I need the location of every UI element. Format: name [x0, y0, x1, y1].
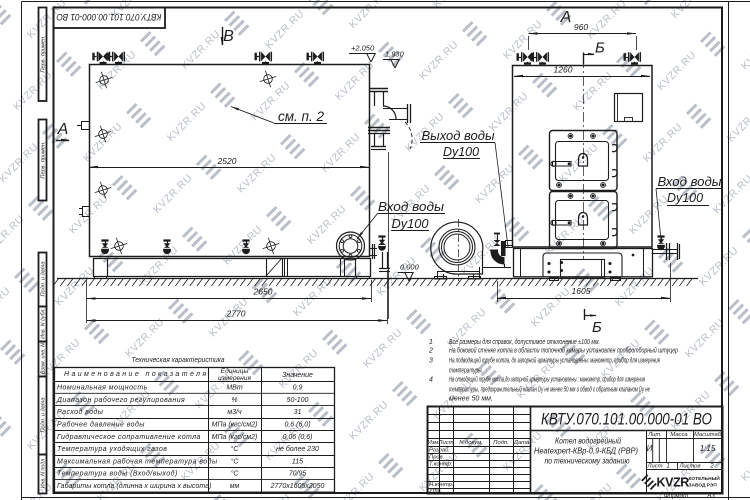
svg-text:Вход воды: Вход воды	[378, 200, 444, 214]
svg-text:Б: Б	[595, 40, 605, 57]
svg-text:Гидравлическое сопративление к: Гидравлическое сопративление котла	[57, 433, 201, 441]
svg-text:Инв. N подл: Инв. N подл	[41, 459, 47, 489]
svg-text:Листов: Листов	[678, 464, 700, 470]
svg-text:Масса: Масса	[670, 432, 688, 438]
svg-text:0,06 (0,6): 0,06 (0,6)	[283, 434, 313, 441]
svg-text:Котел водогрейный: Котел водогрейный	[555, 437, 621, 446]
svg-text:2770х1605х2050: 2770х1605х2050	[270, 483, 325, 490]
svg-text:0,6 (6,0): 0,6 (6,0)	[284, 422, 310, 429]
svg-text:не более 230: не более 230	[276, 445, 319, 453]
svg-text:Температура воды (Вход/выход): Температура воды (Вход/выход)	[57, 470, 178, 478]
svg-text:Т.контр.: Т.контр.	[429, 462, 452, 468]
svg-text:70/95: 70/95	[289, 471, 307, 478]
svg-text:КВТУ.070.101.00.000-01 ВО: КВТУ.070.101.00.000-01 ВО	[56, 11, 162, 22]
svg-text:И: И	[647, 444, 653, 453]
svg-text:А: А	[560, 9, 572, 26]
svg-text:Перв. примен.: Перв. примен.	[41, 35, 47, 72]
svg-text:Наименование показателя: Наименование показателя	[64, 371, 209, 378]
svg-text:50-100: 50-100	[287, 397, 309, 404]
svg-text:МПа (кгс/см2): МПа (кгс/см2)	[212, 434, 258, 441]
svg-text:Heatexpert-КВр-0,9-КБД (РВР): Heatexpert-КВр-0,9-КБД (РВР)	[534, 447, 638, 456]
svg-text:Лист: Лист	[647, 464, 663, 470]
svg-text:На отводящей трубе котла,до за: На отводящей трубе котла,до запорной арм…	[449, 376, 645, 384]
svg-text:температуры.: температуры.	[449, 368, 483, 375]
svg-text:Значение: Значение	[282, 372, 313, 379]
svg-text:°С: °С	[231, 445, 240, 453]
svg-text:Пров.: Пров.	[429, 455, 444, 461]
svg-text:0.000: 0.000	[400, 263, 420, 272]
svg-text:Утв.: Утв.	[428, 488, 442, 494]
svg-text:Перв. примен.: Перв. примен.	[41, 141, 47, 178]
svg-text:1605: 1605	[572, 286, 591, 296]
svg-text:Вход воды: Вход воды	[658, 175, 722, 189]
svg-text:1260: 1260	[554, 65, 573, 75]
svg-text:Расход воды: Расход воды	[57, 408, 104, 416]
svg-text:KVZR: KVZR	[657, 476, 690, 490]
svg-text:960: 960	[574, 22, 588, 32]
svg-text:А: А	[57, 121, 69, 138]
svg-text:Температура уходящих газов: Температура уходящих газов	[57, 445, 167, 453]
svg-text:А3: А3	[706, 493, 715, 500]
svg-text:3: 3	[429, 358, 433, 365]
svg-text:Габариты котла (длинна х ширин: Габариты котла (длинна х ширина х высота…	[57, 482, 212, 490]
svg-text:Взам. инв. N: Взам. инв. N	[41, 343, 47, 374]
svg-text:температуры, предохранительный: температуры, предохранительный клапан Dу…	[449, 386, 650, 394]
svg-text:2520: 2520	[217, 156, 237, 166]
svg-text:Дата: Дата	[513, 440, 530, 446]
svg-text:1,930: 1,930	[385, 50, 405, 59]
svg-text:0,9: 0,9	[293, 385, 303, 392]
svg-text:°С: °С	[231, 470, 240, 478]
svg-text:Выход воды: Выход воды	[422, 129, 495, 143]
svg-text:Dy100: Dy100	[443, 145, 479, 159]
svg-text:На боковой стенке котла в обла: На боковой стенке котла в области топочн…	[449, 347, 678, 355]
svg-text:2: 2	[428, 348, 433, 355]
svg-text:На подводящей трубе котла, д: На подводящей трубе котла, до запорной а…	[449, 357, 660, 365]
svg-text:В: В	[223, 28, 234, 45]
svg-text:115: 115	[292, 458, 303, 465]
svg-text:Лит.: Лит.	[647, 432, 662, 438]
svg-text:Лист: Лист	[438, 440, 454, 446]
svg-text:°С: °С	[231, 457, 240, 465]
svg-text:Масштаб: Масштаб	[694, 432, 722, 438]
svg-text:31: 31	[294, 409, 302, 416]
svg-text:2650: 2650	[253, 287, 273, 297]
svg-text:ЗАВОД РЭП: ЗАВОД РЭП	[689, 483, 718, 489]
svg-text:Формат: Формат	[664, 493, 689, 500]
svg-text:по техническому заданию: по техническому заданию	[545, 457, 630, 466]
svg-text:МВт: МВт	[226, 385, 243, 392]
svg-text:см. п. 2: см. п. 2	[278, 109, 324, 124]
svg-text:Все размеры для справок, допус: Все размеры для справок, допустимое откл…	[449, 338, 600, 346]
svg-text:Изм: Изм	[428, 440, 439, 446]
svg-text:Подп.: Подп.	[493, 440, 508, 446]
svg-text:менее 50 мм.: менее 50 мм.	[449, 396, 493, 403]
svg-text:Б: Б	[592, 319, 602, 336]
svg-text:Подп. и дата: Подп. и дата	[41, 261, 47, 296]
svg-text:Максимальная рабочая температу: Максимальная рабочая температура воды	[57, 457, 218, 465]
svg-text:Dy100: Dy100	[392, 217, 429, 231]
svg-text:Рабочее давление воды: Рабочее давление воды	[57, 421, 145, 429]
svg-text:Подп. и дата: Подп. и дата	[41, 397, 47, 432]
svg-text:1: 1	[429, 339, 433, 346]
svg-text:Техническая характеристика: Техническая характеристика	[132, 355, 225, 364]
svg-text:4: 4	[429, 377, 433, 384]
svg-text:1: 1	[666, 464, 669, 470]
svg-text:МПа (кгс/см2): МПа (кгс/см2)	[212, 422, 258, 429]
svg-text:%: %	[231, 397, 237, 404]
svg-text:измерения: измерения	[218, 375, 251, 382]
svg-text:КВТУ.070.101.00.000-01 ВО: КВТУ.070.101.00.000-01 ВО	[541, 410, 712, 429]
svg-text:Dy100: Dy100	[667, 191, 703, 205]
svg-text:N докум.: N докум.	[459, 440, 482, 446]
svg-text:Номинальная мощность: Номинальная мощность	[57, 385, 148, 392]
svg-text:Разраб.: Разраб.	[429, 448, 450, 454]
svg-text:Единицы: Единицы	[221, 367, 249, 375]
svg-text:м3/ч: м3/ч	[227, 409, 242, 416]
svg-text:1:15: 1:15	[700, 444, 716, 453]
svg-text:2770: 2770	[226, 309, 246, 319]
svg-text:мм: мм	[230, 483, 240, 490]
svg-text:2: 2	[709, 464, 714, 470]
svg-text:Инв. N дубл.: Инв. N дубл.	[41, 308, 47, 339]
svg-text:+2,050: +2,050	[351, 44, 375, 53]
svg-text:Диапазон рабочего регулировани: Диапазон рабочего регулирования	[56, 396, 185, 404]
